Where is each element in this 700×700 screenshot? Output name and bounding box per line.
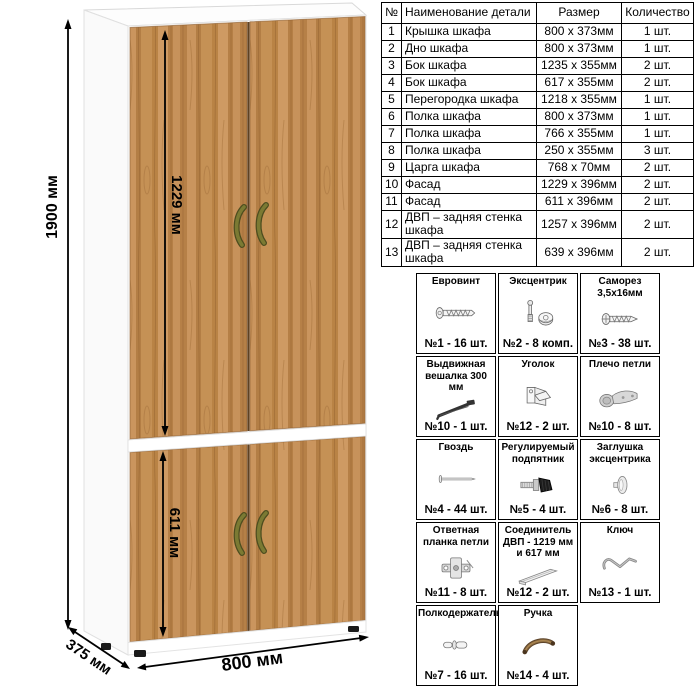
column-part-name: Наименование детали xyxy=(402,3,537,24)
handle-icon xyxy=(510,631,566,659)
hardware-item-icon-wrap xyxy=(582,465,658,505)
part-size: 1218 x 355мм xyxy=(537,92,622,109)
nail-icon xyxy=(428,465,484,493)
part-size: 611 x 396мм xyxy=(537,194,622,211)
table-row: 4Бок шкафа617 x 355мм2 шт. xyxy=(382,75,694,92)
hardware-item: Ключ№13 - 1 шт. xyxy=(580,522,660,603)
table-row: 10Фасад1229 x 396мм2 шт. xyxy=(382,177,694,194)
table-row: 9Царга шкафа768 x 70мм2 шт. xyxy=(382,160,694,177)
table-row: 12ДВП – задняя стенка шкафа1257 x 396мм2… xyxy=(382,211,694,239)
hardware-item-quantity: №14 - 4 шт. xyxy=(507,671,570,685)
part-quantity: 2 шт. xyxy=(622,58,694,75)
shelf-pin-icon xyxy=(428,631,484,659)
hardware-item-icon-wrap xyxy=(418,454,494,505)
part-size: 800 x 373мм xyxy=(537,41,622,58)
hardware-item-title: Гвоздь xyxy=(418,442,494,454)
hardware-item: Эксцентрик№2 - 8 комп. xyxy=(498,273,578,354)
part-quantity: 1 шт. xyxy=(622,24,694,41)
part-size: 639 x 396мм xyxy=(537,238,622,266)
table-row: 5Перегородка шкафа1218 x 355мм1 шт. xyxy=(382,92,694,109)
hardware-item-icon-wrap xyxy=(418,394,494,422)
cabinet-left-side-panel xyxy=(84,10,128,655)
hardware-item-icon-wrap xyxy=(500,620,576,671)
hardware-item-quantity: №12 - 2 шт. xyxy=(507,422,570,436)
hardware-item-quantity: №7 - 16 шт. xyxy=(425,671,488,685)
part-size: 617 x 355мм xyxy=(537,75,622,92)
self-tapping-screw-icon xyxy=(592,305,648,333)
part-size: 766 x 355мм xyxy=(537,126,622,143)
hardware-item-icon-wrap xyxy=(500,288,576,339)
hardware-item-quantity: №4 - 44 шт. xyxy=(425,505,488,519)
part-name: Крышка шкафа xyxy=(402,24,537,41)
row-number: 6 xyxy=(382,109,402,126)
part-name: Дно шкафа xyxy=(402,41,537,58)
part-name: Фасад xyxy=(402,177,537,194)
hardware-item: Плечо петли№10 - 8 шт. xyxy=(580,356,660,437)
part-name: Фасад xyxy=(402,194,537,211)
parts-table-header-row: №Наименование деталиРазмерКоличество xyxy=(382,3,694,24)
assembly-sheet: 1900 мм 1229 мм 611 мм 375 мм 800 мм №На… xyxy=(0,0,700,700)
part-name: Бок шкафа xyxy=(402,75,537,92)
part-quantity: 2 шт. xyxy=(622,160,694,177)
hdf-connector-icon xyxy=(510,560,566,588)
row-number: 12 xyxy=(382,211,402,239)
hardware-item-title: Заглушка эксцентрика xyxy=(582,442,658,465)
part-name: ДВП – задняя стенка шкафа xyxy=(402,238,537,266)
hardware-item: Уголок№12 - 2 шт. xyxy=(498,356,578,437)
hardware-item-title: Ключ xyxy=(582,525,658,537)
part-quantity: 2 шт. xyxy=(622,238,694,266)
hex-key-icon xyxy=(592,548,648,576)
part-quantity: 3 шт. xyxy=(622,143,694,160)
part-quantity: 1 шт. xyxy=(622,126,694,143)
hardware-item: Соединитель ДВП - 1219 мм и 617 мм№12 - … xyxy=(498,522,578,603)
hardware-item-quantity: №13 - 1 шт. xyxy=(589,588,652,602)
hardware-item: Гвоздь№4 - 44 шт. xyxy=(416,439,496,520)
table-row: 1Крышка шкафа800 x 373мм1 шт. xyxy=(382,24,694,41)
table-row: 7Полка шкафа766 x 355мм1 шт. xyxy=(382,126,694,143)
hardware-item-title: Саморез 3,5х16мм xyxy=(582,276,658,299)
hardware-item-icon-wrap xyxy=(418,620,494,671)
hardware-item: Полкодержатель№7 - 16 шт. xyxy=(416,605,496,686)
row-number: 2 xyxy=(382,41,402,58)
part-quantity: 2 шт. xyxy=(622,211,694,239)
hardware-item: Ручка№14 - 4 шт. xyxy=(498,605,578,686)
cam-lock-icon xyxy=(510,299,566,327)
row-number: 4 xyxy=(382,75,402,92)
hardware-item: Ответная планка петли№11 - 8 шт. xyxy=(416,522,496,603)
hardware-item-title: Ручка xyxy=(500,608,576,620)
table-row: 13ДВП – задняя стенка шкафа639 x 396мм2 … xyxy=(382,238,694,266)
hardware-item-title: Уголок xyxy=(500,359,576,371)
table-row: 6Полка шкафа800 x 373мм1 шт. xyxy=(382,109,694,126)
hardware-item-icon-wrap xyxy=(582,299,658,339)
lower-doors xyxy=(130,437,365,642)
hardware-grid: Евровинт№1 - 16 шт.Эксцентрик№2 - 8 комп… xyxy=(416,273,660,686)
hardware-item-quantity: №12 - 2 шт. xyxy=(507,588,570,602)
row-number: 11 xyxy=(382,194,402,211)
hardware-item-title: Ответная планка петли xyxy=(418,525,494,548)
row-number: 13 xyxy=(382,238,402,266)
hardware-item: Выдвижная вешалка 300 мм№10 - 1 шт. xyxy=(416,356,496,437)
part-name: Царга шкафа xyxy=(402,160,537,177)
column-size: Размер xyxy=(537,3,622,24)
hardware-item-title: Полкодержатель xyxy=(418,608,494,620)
hardware-item-quantity: №3 - 38 шт. xyxy=(589,339,652,353)
part-name: Полка шкафа xyxy=(402,143,537,160)
part-name: Полка шкафа xyxy=(402,126,537,143)
hardware-item-quantity: №10 - 8 шт. xyxy=(589,422,652,436)
table-row: 8Полка шкафа250 x 355мм3 шт. xyxy=(382,143,694,160)
hardware-item: Регулируемый подпятник№5 - 4 шт. xyxy=(498,439,578,520)
part-quantity: 2 шт. xyxy=(622,194,694,211)
part-name: ДВП – задняя стенка шкафа xyxy=(402,211,537,239)
column-number: № xyxy=(382,3,402,24)
hardware-item-quantity: №1 - 16 шт. xyxy=(425,339,488,353)
hardware-item-icon-wrap xyxy=(418,288,494,339)
hardware-item-title: Соединитель ДВП - 1219 мм и 617 мм xyxy=(500,525,576,560)
part-name: Бок шкафа xyxy=(402,58,537,75)
hardware-item-title: Регулируемый подпятник xyxy=(500,442,576,465)
hinge-plate-icon xyxy=(428,554,484,582)
table-row: 3Бок шкафа1235 x 355мм2 шт. xyxy=(382,58,694,75)
corner-bracket-icon xyxy=(510,382,566,410)
part-size: 1235 x 355мм xyxy=(537,58,622,75)
row-number: 8 xyxy=(382,143,402,160)
part-size: 1257 x 396мм xyxy=(537,211,622,239)
part-quantity: 1 шт. xyxy=(622,92,694,109)
hardware-item: Заглушка эксцентрика№6 - 8 шт. xyxy=(580,439,660,520)
row-number: 10 xyxy=(382,177,402,194)
hardware-item-icon-wrap xyxy=(500,371,576,422)
dimension-upper-door-label: 1229 мм xyxy=(168,175,185,235)
hardware-item-title: Плечо петли xyxy=(582,359,658,371)
table-row: 2Дно шкафа800 x 373мм1 шт. xyxy=(382,41,694,58)
row-number: 9 xyxy=(382,160,402,177)
row-number: 7 xyxy=(382,126,402,143)
hardware-item-icon-wrap xyxy=(582,537,658,588)
row-number: 5 xyxy=(382,92,402,109)
part-quantity: 2 шт. xyxy=(622,75,694,92)
part-size: 250 x 355мм xyxy=(537,143,622,160)
hardware-item-quantity: №6 - 8 шт. xyxy=(592,505,648,519)
hardware-item: Евровинт№1 - 16 шт. xyxy=(416,273,496,354)
hinge-arm-icon xyxy=(592,382,648,410)
dimension-height-label: 1900 мм xyxy=(44,175,61,239)
hardware-item-title: Выдвижная вешалка 300 мм xyxy=(418,359,494,394)
euro-screw-icon xyxy=(428,299,484,327)
hardware-item-quantity: №2 - 8 комп. xyxy=(503,339,573,353)
hardware-item-icon-wrap xyxy=(418,548,494,588)
part-size: 768 x 70мм xyxy=(537,160,622,177)
part-quantity: 2 шт. xyxy=(622,177,694,194)
cam-cap-icon xyxy=(592,471,648,499)
hardware-item-quantity: №11 - 8 шт. xyxy=(425,588,487,602)
hardware-item-icon-wrap xyxy=(582,371,658,422)
parts-table: №Наименование деталиРазмерКоличество 1Кр… xyxy=(381,2,694,267)
dimension-width-label: 800 мм xyxy=(220,647,284,675)
table-row: 11Фасад611 x 396мм2 шт. xyxy=(382,194,694,211)
column-quantity: Количество xyxy=(622,3,694,24)
part-name: Перегородка шкафа xyxy=(402,92,537,109)
hardware-item-icon-wrap xyxy=(500,465,576,505)
wardrobe-illustration: 1900 мм 1229 мм 611 мм 375 мм 800 мм xyxy=(0,0,400,700)
parts-table-body: 1Крышка шкафа800 x 373мм1 шт.2Дно шкафа8… xyxy=(382,24,694,267)
hardware-item-icon-wrap xyxy=(500,560,576,588)
adjustable-foot-icon xyxy=(510,471,566,499)
part-size: 800 x 373мм xyxy=(537,24,622,41)
hardware-item-quantity: №5 - 4 шт. xyxy=(510,505,566,519)
row-number: 3 xyxy=(382,58,402,75)
part-size: 800 x 373мм xyxy=(537,109,622,126)
hardware-item: Саморез 3,5х16мм№3 - 38 шт. xyxy=(580,273,660,354)
dimension-lower-door-label: 611 мм xyxy=(166,508,183,559)
part-name: Полка шкафа xyxy=(402,109,537,126)
part-size: 1229 x 396мм xyxy=(537,177,622,194)
pullout-hanger-icon xyxy=(428,394,484,422)
part-quantity: 1 шт. xyxy=(622,41,694,58)
hardware-item-title: Евровинт xyxy=(418,276,494,288)
hardware-item-title: Эксцентрик xyxy=(500,276,576,288)
part-quantity: 1 шт. xyxy=(622,109,694,126)
row-number: 1 xyxy=(382,24,402,41)
hardware-item-quantity: №10 - 1 шт. xyxy=(425,422,488,436)
